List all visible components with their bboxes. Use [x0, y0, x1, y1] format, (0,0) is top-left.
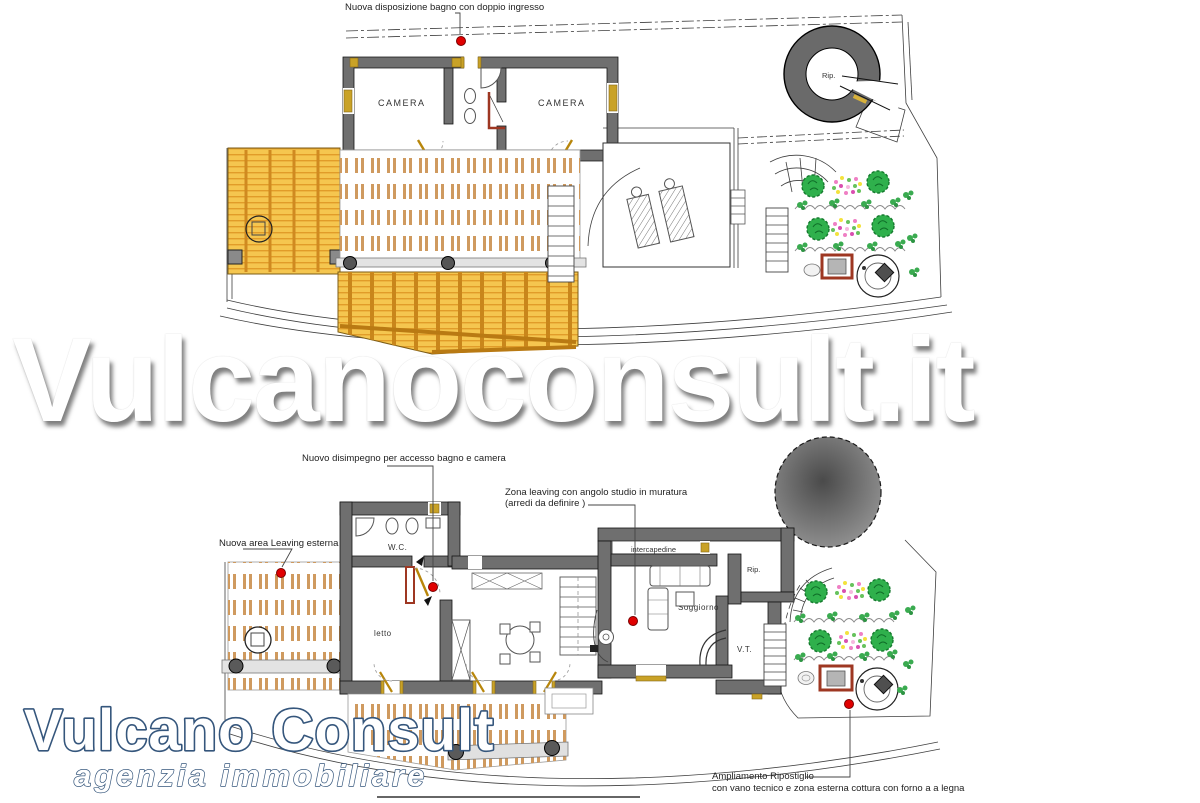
upper-left-pergola — [228, 148, 344, 274]
room-label-intercapedine: intercapedine — [631, 545, 676, 554]
logo-title: Vulcano Consult — [24, 698, 494, 763]
annotation-area-esterna: Nuova area Leaving esterna — [219, 538, 339, 549]
marker-dot — [457, 37, 466, 46]
floorplan-page: CAMERA CAMERA Rip. — [0, 0, 1200, 803]
lower-left-deck — [222, 562, 348, 690]
logo-subtitle: agenzia immobiliare — [74, 758, 427, 793]
room-label-camera-right: CAMERA — [538, 98, 586, 108]
round-storage-tower: Rip. — [784, 26, 905, 142]
agency-logo: Vulcano Consult agenzia immobiliare — [16, 690, 636, 802]
room-label-letto: letto — [374, 629, 392, 638]
annotation-zona-line1: Zona leaving con angolo studio in muratu… — [505, 487, 688, 498]
lower-building-middle — [340, 556, 602, 694]
room-label-rip-upper: Rip. — [822, 71, 835, 80]
marker-dot — [845, 700, 854, 709]
upper-annotation-bathroom: Nuova disposizione bagno con doppio ingr… — [345, 2, 544, 46]
sofa-group — [648, 566, 710, 630]
site-plans-drawing: CAMERA CAMERA Rip. — [0, 0, 1200, 803]
room-label-vt: V.T. — [737, 645, 752, 654]
annotation-ampliamento-line1: Ampliamento Ripostiglio — [712, 771, 814, 782]
lower-building-left: W.C. letto — [340, 502, 470, 694]
room-label-rip-lower: Rip. — [747, 565, 760, 574]
lower-building-right: intercapedine Rip. V.T. Soggiorno — [590, 528, 794, 699]
round-oven-structure — [857, 255, 899, 297]
round-oven-structure — [856, 668, 898, 710]
marker-dot — [277, 569, 286, 578]
annotation-zona-line2: (arredi da definire ) — [505, 498, 585, 509]
marker-dot — [629, 617, 638, 626]
annotation-text: Nuova disposizione bagno con doppio ingr… — [345, 2, 544, 13]
upper-plan: CAMERA CAMERA Rip. — [220, 2, 952, 354]
room-label-wc: W.C. — [388, 543, 407, 552]
marker-dot — [429, 583, 438, 592]
room-label-camera-left: CAMERA — [378, 98, 426, 108]
upper-terrace — [603, 143, 745, 267]
new-wall-red — [406, 567, 414, 603]
annotation-ampliamento-line2: con vano tecnico e zona esterna cottura … — [712, 783, 965, 794]
upper-garden — [795, 171, 920, 297]
wc-fixtures — [356, 518, 440, 536]
upper-lower-pergola — [338, 272, 578, 354]
annotation-disimpegno: Nuovo disimpegno per accesso bagno e cam… — [302, 453, 507, 464]
upper-building: CAMERA CAMERA — [343, 56, 618, 162]
